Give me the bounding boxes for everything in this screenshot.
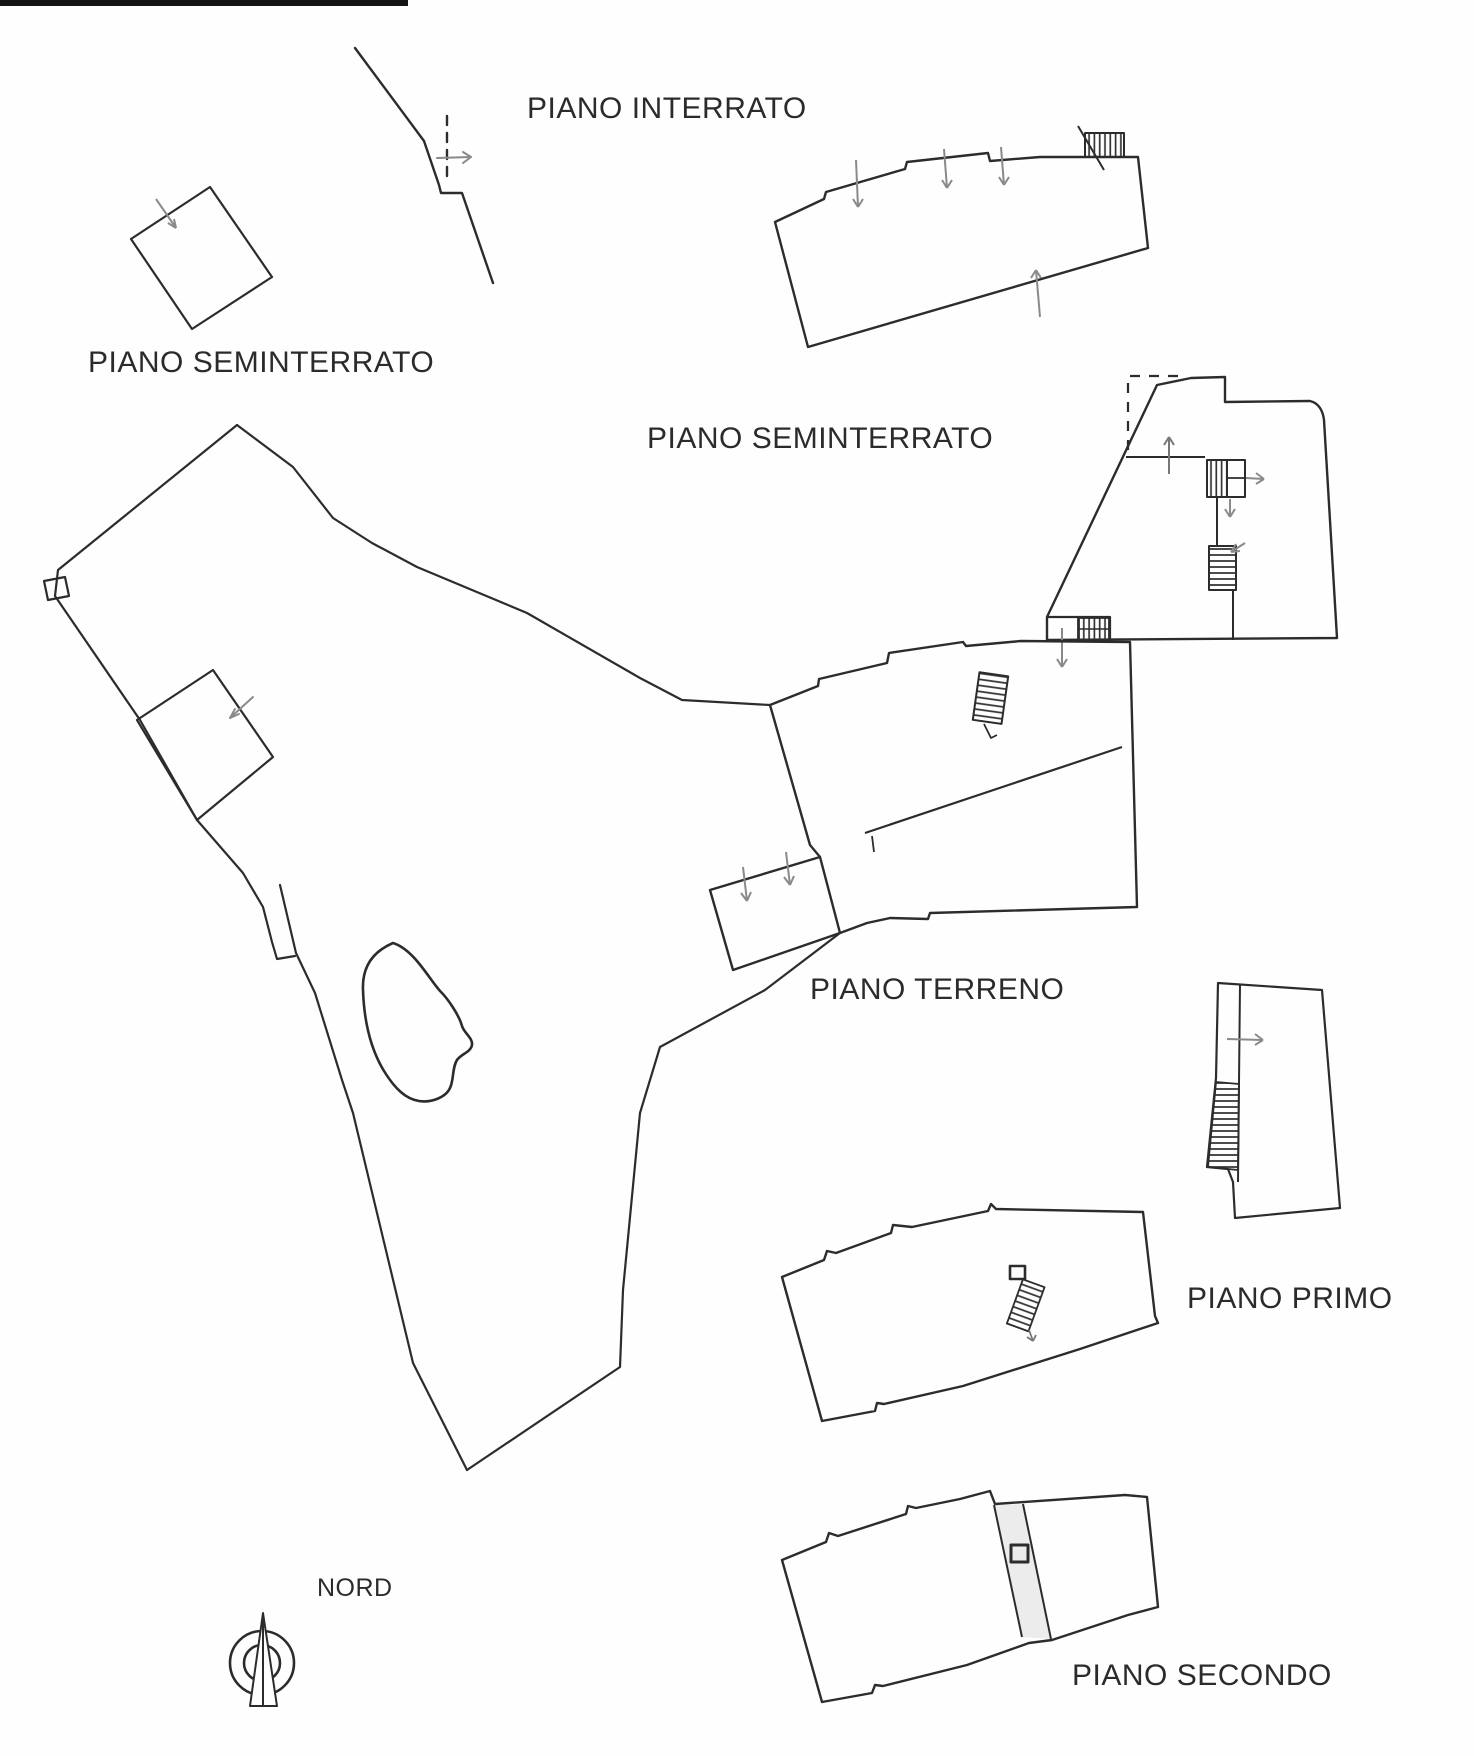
scan-artifact-bar	[0, 0, 408, 6]
label-piano-secondo: PIANO SECONDO	[1072, 1659, 1332, 1692]
interior-tick	[872, 836, 874, 852]
down-arrow-icon	[1225, 499, 1235, 517]
plan-primo	[782, 1204, 1158, 1421]
interior-divider	[865, 747, 1122, 833]
secondo-strip-shading	[994, 1504, 1051, 1639]
compass-icon	[230, 1613, 294, 1706]
stairs-icon	[1207, 460, 1227, 497]
boundary-zigzag-line	[355, 48, 493, 283]
plan-terreno	[710, 641, 1137, 970]
entrance-arrow-icon	[156, 199, 176, 228]
plan-interrato	[775, 126, 1148, 347]
seminterrato-dashed-corner	[1128, 376, 1180, 450]
up-arrow-icon	[1031, 270, 1041, 317]
right-arrow-icon	[1246, 473, 1264, 484]
seminterrato-outline	[1047, 377, 1337, 640]
label-piano-interrato: PIANO INTERRATO	[527, 92, 807, 125]
plan-primo-stair-wing	[1207, 983, 1340, 1218]
stairs-icon	[1007, 1279, 1045, 1331]
annex-outline	[131, 187, 272, 329]
down-arrow-icon	[942, 149, 952, 188]
stairs-icon	[1085, 133, 1124, 157]
stairs-landing	[1010, 1266, 1025, 1279]
plan-seminterrato-main	[1047, 376, 1337, 667]
floorplan-page: PIANO INTERRATO PIANO SEMINTERRATO PIANO…	[0, 0, 1474, 1756]
entrance-arrows	[741, 852, 794, 901]
parcel-inner-structure	[137, 670, 273, 820]
pond-outline	[363, 943, 472, 1101]
label-piano-seminterrato-left: PIANO SEMINTERRATO	[88, 346, 434, 379]
primo-outline	[782, 1204, 1158, 1421]
down-arrow-icon	[741, 867, 751, 901]
terreno-outline	[770, 641, 1137, 933]
terreno-annex-outline	[710, 857, 840, 970]
parcel-boundary-west-spur	[280, 885, 467, 1470]
terreno-left-edge	[770, 705, 820, 857]
boundary-fragment	[355, 48, 493, 283]
parcel-boundary-east	[467, 933, 840, 1470]
label-piano-primo: PIANO PRIMO	[1187, 1282, 1393, 1315]
interrato-outline	[775, 153, 1148, 347]
entrance-arrow-icon	[437, 152, 471, 163]
label-piano-terreno: PIANO TERRENO	[810, 973, 1064, 1006]
plan-seminterrato-annex	[131, 187, 272, 329]
floorplan-drawing: PIANO INTERRATO PIANO SEMINTERRATO PIANO…	[0, 0, 1474, 1756]
stairs-icon	[1208, 1082, 1239, 1170]
parcel-boundary-north	[237, 425, 770, 705]
down-left-arrow-icon	[1231, 543, 1245, 552]
stairs-tail	[984, 724, 997, 738]
label-nord: NORD	[317, 1574, 393, 1602]
down-arrow-icon	[1057, 628, 1067, 667]
up-arrow-icon	[1164, 437, 1174, 474]
down-arrow-icon	[999, 147, 1009, 185]
right-arrow-icon	[1227, 1034, 1263, 1045]
entrance-arrows	[853, 147, 1041, 317]
label-piano-seminterrato-right: PIANO SEMINTERRATO	[647, 422, 993, 455]
parcel-boundary-west	[55, 425, 295, 959]
site-parcel	[44, 425, 840, 1470]
stairs-icon	[973, 672, 1008, 724]
